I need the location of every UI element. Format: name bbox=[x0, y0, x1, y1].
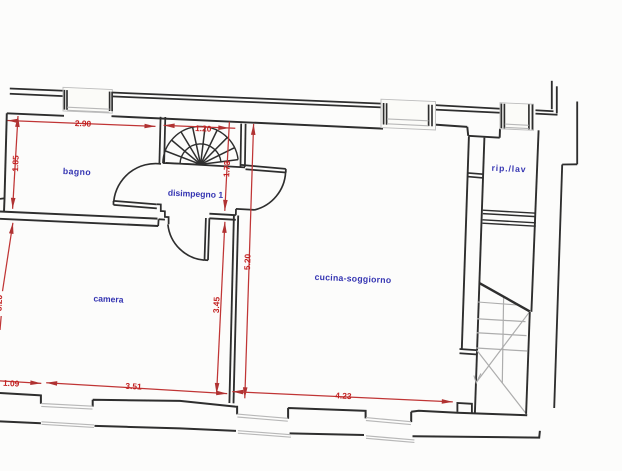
svg-text:2.90: 2.90 bbox=[75, 118, 92, 129]
svg-text:5.20: 5.20 bbox=[242, 253, 253, 270]
svg-text:1.85: 1.85 bbox=[10, 155, 21, 172]
svg-text:1.73: 1.73 bbox=[221, 160, 232, 177]
svg-text:1.09: 1.09 bbox=[3, 378, 20, 389]
svg-text:3.51: 3.51 bbox=[125, 381, 142, 392]
svg-text:4.23: 4.23 bbox=[335, 390, 352, 401]
svg-text:bagno: bagno bbox=[63, 166, 92, 177]
svg-text:3.45: 3.45 bbox=[211, 296, 222, 313]
svg-text:1.20: 1.20 bbox=[195, 123, 212, 134]
svg-text:camera: camera bbox=[93, 293, 124, 304]
svg-text:rip./lav: rip./lav bbox=[491, 163, 526, 175]
svg-text:3.20: 3.20 bbox=[0, 294, 4, 311]
